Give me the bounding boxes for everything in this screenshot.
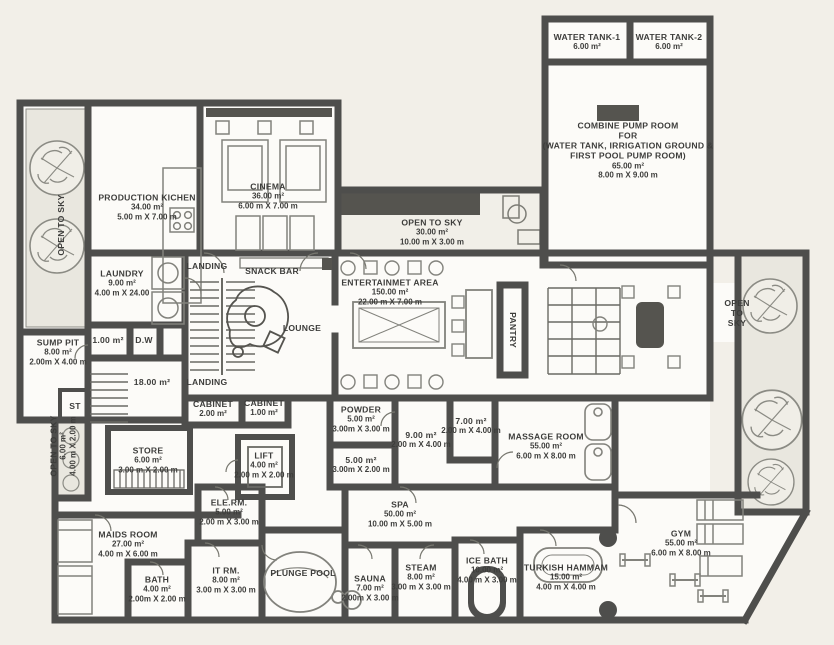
courtyard-glazing	[338, 192, 480, 215]
floorplan-drawing	[0, 0, 834, 645]
floorplan-canvas: WATER TANK-16.00 m²WATER TANK-26.00 m²CO…	[0, 0, 834, 645]
planter-topleft	[26, 109, 86, 327]
room-floors	[20, 16, 806, 620]
pump-equipment-icon	[597, 105, 639, 121]
ice-bath-tub-icon	[468, 566, 506, 620]
planter-right	[740, 256, 804, 510]
planter-bottomleft	[57, 422, 86, 496]
